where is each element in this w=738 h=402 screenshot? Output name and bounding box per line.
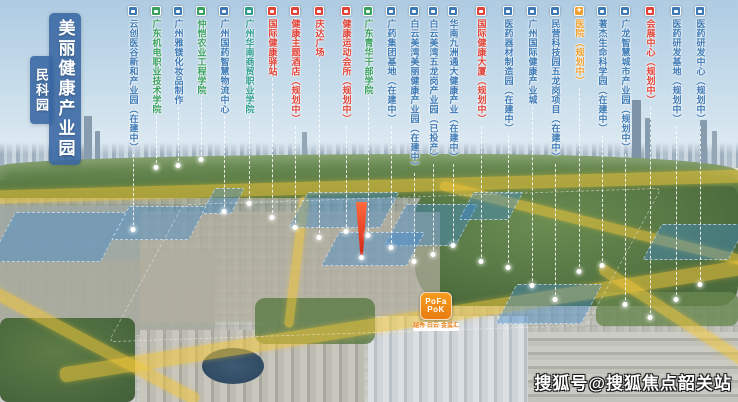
leader-line bbox=[700, 126, 701, 286]
poi-label: 广州华南商贸职业学院 bbox=[245, 19, 254, 114]
watermark: 搜狐号@搜狐焦点韶关站 bbox=[534, 369, 732, 394]
poi-dot bbox=[553, 297, 558, 302]
marker-glyph-icon bbox=[623, 10, 627, 13]
poi-dot bbox=[247, 201, 252, 206]
page-title: 美丽健康产业园 bbox=[49, 13, 81, 165]
leader-line bbox=[133, 154, 134, 230]
poi-marker-icon bbox=[267, 6, 277, 16]
map-callout: 广州华南商贸职业学院 bbox=[242, 6, 256, 204]
leader-line bbox=[295, 126, 296, 229]
leader-line bbox=[414, 173, 415, 262]
poi-dot bbox=[270, 215, 275, 220]
poi-marker-icon bbox=[363, 6, 373, 16]
marker-glyph-icon bbox=[222, 10, 226, 13]
poi-label: 白云美湾五龙岗产业园（已投产） bbox=[429, 19, 438, 162]
poi-label: 仲恺农业工程学院 bbox=[197, 19, 206, 95]
poi-label: 广东机电职业技术学院 bbox=[152, 19, 161, 114]
poi-label: 广东青华干部学院 bbox=[364, 19, 373, 95]
marker-glyph-icon bbox=[674, 10, 678, 13]
leader-line bbox=[224, 116, 225, 212]
marker-glyph-icon bbox=[317, 10, 321, 13]
marker-glyph-icon bbox=[154, 10, 158, 13]
poi-marker-icon bbox=[173, 6, 183, 16]
poi-marker-icon bbox=[527, 6, 537, 16]
poi-label: 健康运动会所（规划中） bbox=[342, 19, 351, 124]
poi-dot bbox=[199, 157, 204, 162]
map-callout: 民营科技园五龙岗项目（在建中） bbox=[548, 6, 562, 300]
poi-marker-icon bbox=[503, 6, 513, 16]
leader-line bbox=[156, 116, 157, 168]
poi-dot bbox=[154, 165, 159, 170]
poi-marker-icon bbox=[550, 6, 560, 16]
poi-dot bbox=[506, 265, 511, 270]
poi-label: 云创医谷新和产业园（在建中） bbox=[129, 19, 138, 152]
marker-glyph-icon bbox=[412, 10, 416, 13]
project-logo-text: PoK bbox=[427, 306, 445, 314]
poi-marker-icon bbox=[314, 6, 324, 16]
leader-line bbox=[579, 88, 580, 273]
location-dot bbox=[359, 255, 364, 260]
poi-label: 医药器材制造园（在建中） bbox=[504, 19, 513, 133]
map-callout: 健康运动会所（规划中） bbox=[339, 6, 353, 232]
marker-glyph-icon bbox=[131, 10, 135, 13]
marker-glyph-icon: ✚ bbox=[576, 8, 581, 14]
poi-marker-icon bbox=[196, 6, 206, 16]
marker-glyph-icon bbox=[431, 10, 435, 13]
map-callout: 白云美湾美丽健康产业园（在建中） bbox=[407, 6, 421, 262]
aerial-map: PoFa PoK 越秀·白云·金玺汇 云创医谷新和产业园（在建中） 广东机电职业… bbox=[0, 0, 738, 402]
poi-dot bbox=[317, 235, 322, 240]
poi-marker-icon bbox=[448, 6, 458, 16]
project-logo-tagline: 越秀·白云·金玺汇 bbox=[413, 322, 459, 331]
leader-line bbox=[391, 126, 392, 249]
marker-glyph-icon bbox=[199, 10, 203, 13]
poi-dot bbox=[623, 302, 628, 307]
poi-marker-icon bbox=[645, 6, 655, 16]
marker-glyph-icon bbox=[698, 10, 702, 13]
poi-marker-icon bbox=[620, 6, 630, 16]
leader-line bbox=[319, 59, 320, 238]
map-callout: 医药研发中心（规划中） bbox=[693, 6, 707, 285]
marker-glyph-icon bbox=[506, 10, 510, 13]
map-callout: 广州雅镁化妆品制作 bbox=[171, 6, 185, 166]
leader-line bbox=[453, 164, 454, 247]
poi-marker-icon bbox=[386, 6, 396, 16]
map-callout: 医药研发基地（规划中） bbox=[669, 6, 683, 300]
poi-dot bbox=[648, 315, 653, 320]
poi-marker-icon bbox=[128, 6, 138, 16]
marker-glyph-icon bbox=[293, 10, 297, 13]
poi-marker-icon bbox=[695, 6, 705, 16]
marker-glyph-icon bbox=[530, 10, 534, 13]
map-callout: 国际健康大厦（规划中） bbox=[474, 6, 488, 262]
map-callout: 著杰生命科学园（在建中） bbox=[595, 6, 609, 266]
poi-dot bbox=[479, 259, 484, 264]
poi-marker-icon bbox=[290, 6, 300, 16]
map-callout: 仲恺农业工程学院 bbox=[194, 6, 208, 160]
marker-glyph-icon bbox=[176, 10, 180, 13]
poi-marker-icon bbox=[244, 6, 254, 16]
leader-line bbox=[650, 107, 651, 319]
map-callout: 健康主题酒店（规划中） bbox=[288, 6, 302, 228]
marker-glyph-icon bbox=[366, 10, 370, 13]
poi-label: 国际健康大厦（规划中） bbox=[477, 19, 486, 124]
map-callout: 广药集团基地（在建中） bbox=[384, 6, 398, 248]
map-callout: 白云美湾五龙岗产业园（已投产） bbox=[426, 6, 440, 255]
map-callout: 广东青华干部学院 bbox=[361, 6, 375, 236]
map-callout: 医药器材制造园（在建中） bbox=[501, 6, 515, 268]
page-subtitle: 民科园 bbox=[30, 56, 53, 124]
leader-line bbox=[555, 164, 556, 301]
leader-line bbox=[625, 154, 626, 305]
map-callout: 会展中心（规划中） bbox=[643, 6, 657, 318]
leader-line bbox=[249, 116, 250, 204]
poi-dot bbox=[344, 229, 349, 234]
poi-label: 白云美湾美丽健康产业园（在建中） bbox=[410, 19, 419, 171]
marker-glyph-icon bbox=[479, 10, 483, 13]
map-callout: 庆达广场 bbox=[312, 6, 326, 238]
poi-label: 会展中心（规划中） bbox=[646, 19, 655, 105]
leader-line bbox=[368, 97, 369, 236]
skyscraper bbox=[632, 100, 641, 166]
poi-dot bbox=[600, 263, 605, 268]
leader-line bbox=[532, 107, 533, 287]
poi-dot bbox=[431, 252, 436, 257]
poi-dot bbox=[412, 259, 417, 264]
map-callout: ✚ 医院（规划中） bbox=[572, 6, 586, 272]
poi-label: 庆达广场 bbox=[315, 19, 324, 57]
poi-marker-icon bbox=[476, 6, 486, 16]
poi-dot bbox=[674, 297, 679, 302]
poi-dot bbox=[131, 227, 136, 232]
poi-marker-icon: ✚ bbox=[574, 6, 584, 16]
poi-dot bbox=[530, 283, 535, 288]
poi-marker-icon bbox=[671, 6, 681, 16]
leader-line bbox=[508, 135, 509, 268]
leader-line bbox=[602, 135, 603, 266]
leader-line bbox=[676, 126, 677, 301]
map-callout: 广州国药智慧物流中心 bbox=[217, 6, 231, 212]
map-callout: 广龙智慧城市产业园（规划中） bbox=[618, 6, 632, 305]
poi-marker-icon bbox=[219, 6, 229, 16]
poi-dot bbox=[389, 245, 394, 250]
map-callout: 国际健康驿站 bbox=[265, 6, 279, 218]
marker-glyph-icon bbox=[389, 10, 393, 13]
marker-glyph-icon bbox=[247, 10, 251, 13]
marker-glyph-icon bbox=[270, 10, 274, 13]
poi-marker-icon bbox=[151, 6, 161, 16]
poi-label: 民营科技园五龙岗项目（在建中） bbox=[551, 19, 560, 162]
leader-line bbox=[178, 107, 179, 167]
poi-dot bbox=[176, 163, 181, 168]
marker-glyph-icon bbox=[648, 10, 652, 13]
poi-label: 广州雅镁化妆品制作 bbox=[174, 19, 183, 105]
marker-glyph-icon bbox=[553, 10, 557, 13]
poi-marker-icon bbox=[341, 6, 351, 16]
marker-glyph-icon bbox=[600, 10, 604, 13]
poi-label: 医药研发中心（规划中） bbox=[696, 19, 705, 124]
leader-line bbox=[433, 164, 434, 256]
marker-glyph-icon bbox=[344, 10, 348, 13]
leader-line bbox=[272, 78, 273, 218]
poi-label: 广州国际健康产业城 bbox=[528, 19, 537, 105]
poi-dot bbox=[366, 233, 371, 238]
map-callout: 广东机电职业技术学院 bbox=[149, 6, 163, 168]
leader-line bbox=[481, 126, 482, 263]
skyscraper bbox=[712, 131, 717, 167]
leader-line bbox=[201, 97, 202, 160]
leader-line bbox=[346, 126, 347, 233]
poi-label: 广龙智慧城市产业园（规划中） bbox=[621, 19, 630, 152]
map-callout: 华南九洲通大健康产业（在建中） bbox=[446, 6, 460, 246]
poi-label: 医药研发基地（规划中） bbox=[672, 19, 681, 124]
poi-label: 著杰生命科学园（在建中） bbox=[598, 19, 607, 133]
poi-label: 医院（规划中） bbox=[575, 19, 584, 86]
poi-label: 国际健康驿站 bbox=[268, 19, 277, 76]
poi-marker-icon bbox=[597, 6, 607, 16]
poi-label: 华南九洲通大健康产业（在建中） bbox=[449, 19, 458, 162]
poi-dot bbox=[293, 225, 298, 230]
poi-label: 广州国药智慧物流中心 bbox=[220, 19, 229, 114]
poi-marker-icon bbox=[409, 6, 419, 16]
poi-dot bbox=[577, 269, 582, 274]
poi-dot bbox=[222, 209, 227, 214]
project-logo: PoFa PoK bbox=[420, 292, 452, 320]
poi-dot bbox=[698, 282, 703, 287]
map-callout: 广州国际健康产业城 bbox=[525, 6, 539, 286]
map-callout: 云创医谷新和产业园（在建中） bbox=[126, 6, 140, 230]
poi-marker-icon bbox=[428, 6, 438, 16]
poi-dot bbox=[451, 243, 456, 248]
marker-glyph-icon bbox=[451, 10, 455, 13]
poi-label: 健康主题酒店（规划中） bbox=[291, 19, 300, 124]
poi-label: 广药集团基地（在建中） bbox=[387, 19, 396, 124]
